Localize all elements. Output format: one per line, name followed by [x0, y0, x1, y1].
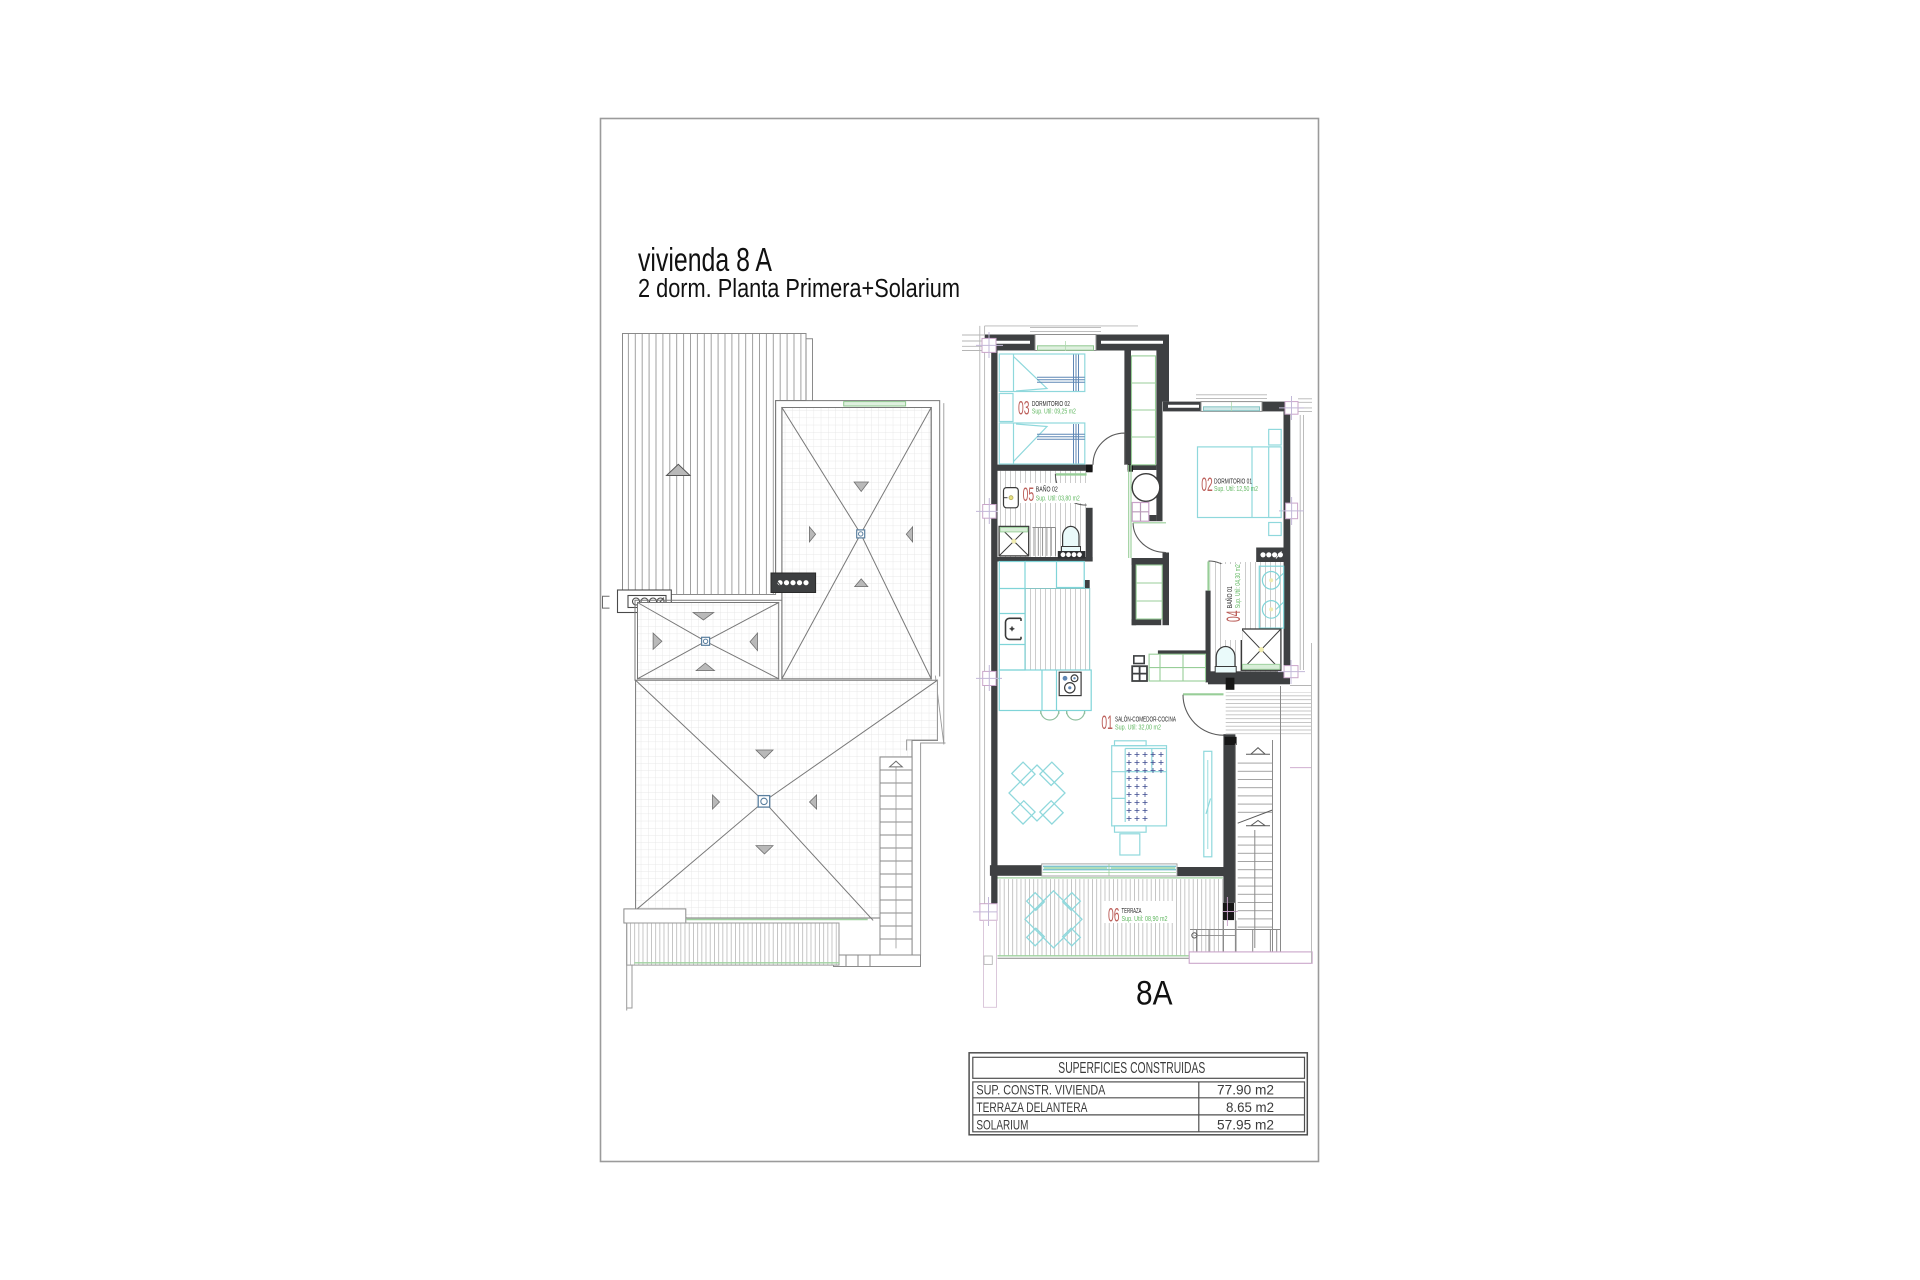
- svg-text:BAÑO 02: BAÑO 02: [1036, 484, 1058, 493]
- svg-text:Sup. Util: 09,25 m2: Sup. Util: 09,25 m2: [1032, 406, 1076, 415]
- svg-text:8A: 8A: [1136, 975, 1173, 1013]
- svg-text:06: 06: [1108, 905, 1120, 926]
- svg-text:Sup. Util: 04,30 m2: Sup. Util: 04,30 m2: [1233, 564, 1242, 608]
- svg-text:8.65 m2: 8.65 m2: [1226, 1099, 1274, 1115]
- svg-text:57.95 m2: 57.95 m2: [1217, 1116, 1274, 1132]
- svg-text:Sup. Util: 32,00 m2: Sup. Util: 32,00 m2: [1115, 723, 1161, 732]
- svg-text:Sup. Util: 08,90 m2: Sup. Util: 08,90 m2: [1122, 914, 1168, 923]
- svg-text:03: 03: [1018, 399, 1030, 420]
- svg-text:04: 04: [1224, 610, 1245, 622]
- svg-text:02: 02: [1201, 475, 1213, 496]
- svg-text:SOLARIUM: SOLARIUM: [976, 1116, 1028, 1132]
- svg-text:Sup. Util: 03,80 m2: Sup. Util: 03,80 m2: [1036, 494, 1080, 503]
- svg-text:77.90 m2: 77.90 m2: [1217, 1082, 1274, 1098]
- svg-text:SUPERFICIES CONSTRUIDAS: SUPERFICIES CONSTRUIDAS: [1058, 1060, 1205, 1077]
- svg-text:05: 05: [1023, 485, 1035, 506]
- svg-text:2 dorm. Planta Primera+Solari: 2 dorm. Planta Primera+Solarium: [638, 275, 960, 303]
- svg-text:vivienda 8 A: vivienda 8 A: [638, 241, 772, 278]
- svg-text:01: 01: [1101, 713, 1113, 734]
- svg-text:SUP. CONSTR. VIVIENDA: SUP. CONSTR. VIVIENDA: [976, 1082, 1106, 1098]
- svg-text:TERRAZA DELANTERA: TERRAZA DELANTERA: [976, 1099, 1087, 1115]
- svg-text:Sup. Util: 12,50 m2: Sup. Util: 12,50 m2: [1214, 484, 1258, 493]
